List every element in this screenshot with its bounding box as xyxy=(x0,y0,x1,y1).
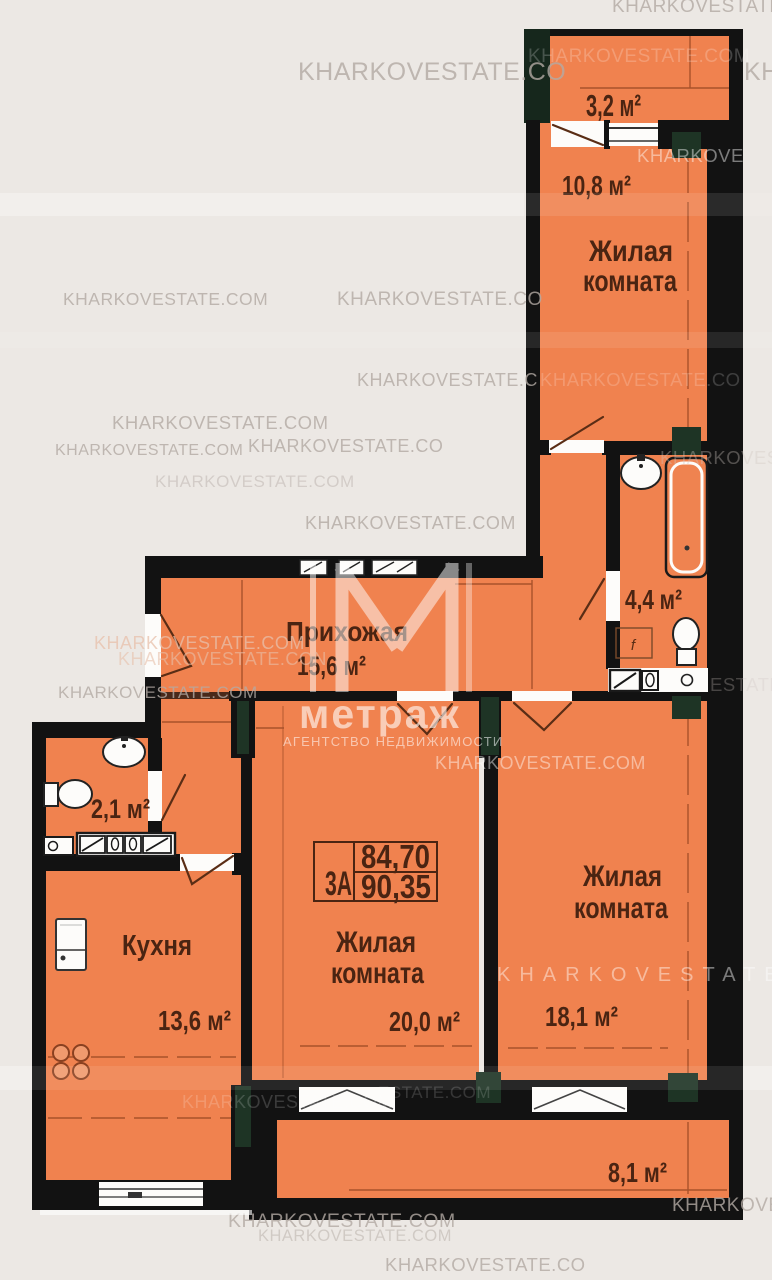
svg-text:KHARKOVE: KHARKOVE xyxy=(672,1195,772,1216)
svg-text:KHARKOVESTATE.COM: KHARKOVESTATE.COM xyxy=(258,1227,452,1245)
svg-text:KHARKOVESTATE: KHARKOVESTATE xyxy=(497,964,772,986)
svg-text:АГЕНТСТВО НЕДВИЖИМОСТИ: АГЕНТСТВО НЕДВИЖИМОСТИ xyxy=(283,734,503,749)
svg-text:Кухня: Кухня xyxy=(122,930,192,962)
svg-text:KHARKOVESTATE.COM: KHARKOVESTATE.COM xyxy=(58,683,258,702)
svg-text:KHARKOVESTATE.CO: KHARKOVESTATE.CO xyxy=(298,58,566,86)
svg-text:2,1 м²: 2,1 м² xyxy=(91,794,150,824)
svg-text:KHARKOVESTATE.COM: KHARKOVESTATE.COM xyxy=(528,46,750,67)
svg-text:Жилая: Жилая xyxy=(588,235,673,268)
svg-text:4,4 м²: 4,4 м² xyxy=(625,584,682,615)
svg-text:ESTATE: ESTATE xyxy=(710,674,772,695)
svg-text:90,35: 90,35 xyxy=(361,868,431,905)
svg-text:KHARKOVESTATE.CO: KHARKOVESTATE.CO xyxy=(385,1254,586,1275)
svg-text:20,0 м²: 20,0 м² xyxy=(389,1006,460,1037)
svg-text:комната: комната xyxy=(583,265,677,298)
svg-text:Жилая: Жилая xyxy=(582,860,662,893)
svg-text:KHARKOVESTATE.COM: KHARKOVESTATE.COM xyxy=(612,0,772,17)
svg-text:KHARKOVESTATE: KHARKOVESTATE xyxy=(660,447,772,468)
svg-text:3,2 м²: 3,2 м² xyxy=(586,88,641,123)
svg-text:KHARKOVESTATE.COM: KHARKOVESTATE.COM xyxy=(55,442,243,459)
svg-text:KHARKOVESTATE.CO: KHARKOVESTATE.CO xyxy=(540,369,741,390)
svg-text:KHARKOVESTATE.COM: KHARKOVESTATE.COM xyxy=(435,753,646,773)
svg-text:KHARKOVESTATE.CO: KHARKOVESTATE.CO xyxy=(337,289,543,310)
svg-text:комната: комната xyxy=(331,957,424,990)
svg-text:метраж: метраж xyxy=(299,691,461,737)
svg-text:3А: 3А xyxy=(325,865,352,903)
svg-text:KHARKOVE: KHARKOVE xyxy=(637,145,744,166)
svg-text:Жилая: Жилая xyxy=(335,926,416,959)
svg-text:KHARKOVESTATE.COM: KHARKOVESTATE.COM xyxy=(182,1092,393,1112)
svg-text:KHARKOVESTATE.COM: KHARKOVESTATE.COM xyxy=(305,513,516,533)
svg-text:13,6 м²: 13,6 м² xyxy=(158,1005,231,1036)
svg-text:18,1 м²: 18,1 м² xyxy=(545,1001,618,1032)
svg-text:KHARKOVESTATE.COM: KHARKOVESTATE.COM xyxy=(155,472,355,491)
svg-text:8,1 м²: 8,1 м² xyxy=(608,1157,667,1188)
svg-text:KHARKOVESTATE.C: KHARKOVESTATE.C xyxy=(357,370,538,390)
svg-text:KHARKOVESTATE.COM: KHARKOVESTATE.COM xyxy=(63,289,268,309)
svg-text:KHARKOVESTATE.COM: KHARKOVESTATE.COM xyxy=(112,412,328,433)
svg-text:KHARKOVESTATE.CO: KHARKOVESTATE.CO xyxy=(248,436,443,456)
svg-text:KHARKOVESTATE.CON: KHARKOVESTATE.CON xyxy=(118,649,327,669)
svg-text:комната: комната xyxy=(574,892,668,925)
